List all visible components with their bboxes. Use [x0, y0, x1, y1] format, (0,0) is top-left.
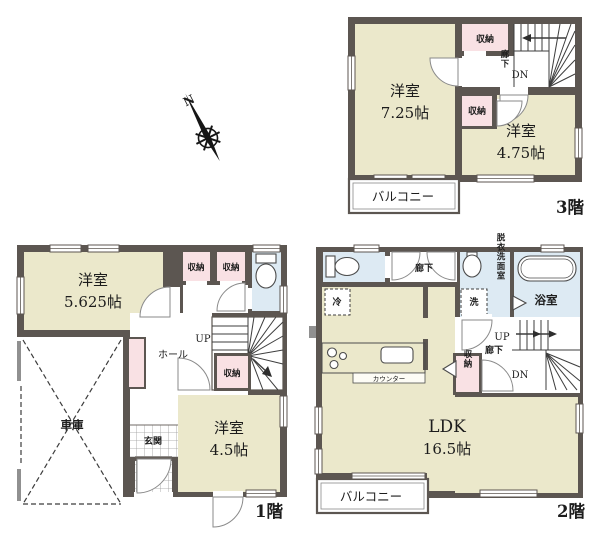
hall-cabinet-1f: [128, 338, 145, 388]
label-3f-floor: 3階: [556, 198, 584, 217]
compass-north-label: N: [181, 92, 197, 109]
label-1f-room1-name: 洋室: [78, 271, 108, 289]
label-1f-entrance: 玄関: [144, 435, 162, 447]
sink-icon-2f: [463, 255, 481, 277]
label-2f-floor: 2階: [557, 502, 585, 521]
kitchen-sink-icon-2f: [381, 347, 413, 363]
label-2f-down: DN: [512, 370, 529, 381]
label-2f-counter: カウンター: [373, 374, 406, 383]
label-1f-closet-a: 収納: [187, 262, 204, 273]
label-3f-closet-mid: 収納: [468, 105, 486, 117]
label-2f-balcony: バルコニー: [340, 489, 402, 504]
label-2f-washroom: 脱衣洗面室: [495, 233, 505, 281]
label-1f-room2-name: 洋室: [214, 419, 244, 437]
door-1f-south-ext: [213, 497, 243, 527]
floor-plan-1f: 洋室 5.625帖 収納 収納 UP ホール 収納 車庫 玄関 洋室 4.5帖 …: [17, 245, 287, 527]
toilet-icon-2f: [326, 256, 335, 277]
label-3f-room1-size: 7.25帖: [381, 104, 429, 122]
entrance-1f: [130, 425, 178, 498]
floor-plan-3f: 洋室 7.25帖 収納 廊下 DN 収納 洋室 4.75帖 バルコニー 3階: [348, 17, 584, 217]
label-3f-hallway: 廊下: [499, 49, 509, 69]
label-1f-floor: 1階: [255, 502, 283, 521]
toilet-icon-1f: [256, 254, 276, 263]
label-2f-closet: 収納: [462, 349, 472, 369]
label-3f-balcony: バルコニー: [372, 189, 434, 204]
label-2f-hallway-mid: 廊下: [485, 344, 503, 356]
floorplan-page: 洋室 7.25帖 収納 廊下 DN 収納 洋室 4.75帖 バルコニー 3階 N: [0, 0, 600, 538]
label-3f-closet-top: 収納: [476, 33, 494, 45]
label-1f-room1-size: 5.625帖: [64, 293, 122, 311]
label-2f-ldk-name: LDK: [428, 417, 466, 437]
label-2f-fridge: 冷: [332, 296, 341, 308]
label-1f-closet-c: 収納: [223, 368, 240, 379]
label-1f-garage: 車庫: [61, 418, 84, 432]
label-1f-closet-b: 収納: [222, 262, 239, 273]
label-2f-washer: 洗: [469, 296, 478, 308]
label-1f-hall: ホール: [158, 349, 188, 361]
label-1f-up: UP: [195, 334, 210, 345]
stove-icon-2f: [328, 348, 337, 357]
label-2f-up: UP: [494, 332, 509, 343]
label-1f-room2-size: 4.5帖: [210, 441, 249, 459]
label-3f-room1-name: 洋室: [390, 82, 420, 100]
floorplan-canvas: 洋室 7.25帖 収納 廊下 DN 収納 洋室 4.75帖 バルコニー 3階 N: [0, 0, 600, 538]
floor-plan-2f: 廊下 脱衣洗面室 浴室 洗 冷 カウンター UP 廊下 DN 収納 LDK 16…: [309, 233, 585, 521]
label-2f-bathroom: 浴室: [535, 293, 558, 307]
label-3f-room2-name: 洋室: [506, 122, 536, 140]
label-2f-ldk-size: 16.5帖: [423, 440, 471, 458]
compass: N: [174, 88, 232, 168]
label-2f-hallway-top: 廊下: [415, 262, 433, 274]
label-3f-room2-size: 4.75帖: [497, 144, 545, 162]
label-3f-down: DN: [512, 70, 529, 81]
